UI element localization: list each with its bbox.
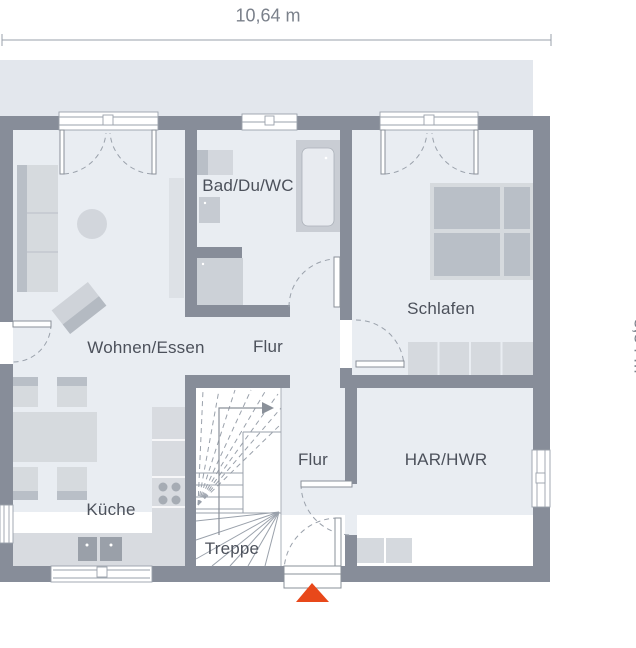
dimension-width-label: 10,64 m [235, 6, 300, 27]
bedroom-door-opening [340, 320, 352, 368]
kitchen-side-window [0, 505, 13, 543]
room-label-flur-lower: Flur [298, 450, 328, 470]
room-label-kueche: Küche [86, 500, 135, 520]
bath-door-leaf [334, 257, 340, 307]
washbasin [197, 150, 208, 175]
room-label-wohnen-essen: Wohnen/Essen [87, 338, 204, 358]
kitchen-sink [78, 537, 122, 561]
room-label-flur-upper: Flur [253, 337, 283, 357]
bedroom-door-leaf [356, 361, 404, 367]
room-label-treppe: Treppe [205, 539, 259, 559]
french-door-leaf [152, 130, 156, 174]
living-window [59, 112, 158, 130]
utility-door-leaf [301, 481, 352, 487]
dimension-depth-label: 8,84 m [630, 318, 636, 373]
room-label-har-hwr: HAR/HWR [405, 450, 488, 470]
utility-window [532, 450, 550, 507]
tv-board [169, 178, 184, 298]
sofa [17, 165, 58, 292]
floor-plan: 10,64 m 8,84 m Wohnen/Essen Flur Bad/Du/… [0, 0, 636, 648]
bed [430, 183, 533, 280]
room-label-bad-du-wc: Bad/Du/WC [202, 176, 294, 196]
bath-window [242, 114, 297, 130]
rug [77, 209, 107, 239]
bedroom-window [380, 112, 478, 130]
terrace-door-leaf [13, 321, 51, 327]
shower [197, 258, 243, 305]
front-door-leaf [335, 518, 341, 572]
dimension-line-width [2, 34, 551, 46]
floor-plan-drawing [0, 0, 636, 648]
french-door-leaf [60, 130, 64, 174]
wc [199, 197, 220, 223]
room-label-schlafen: Schlafen [407, 299, 475, 319]
kitchen-window [51, 566, 152, 582]
roof-overhang-band [0, 60, 533, 116]
